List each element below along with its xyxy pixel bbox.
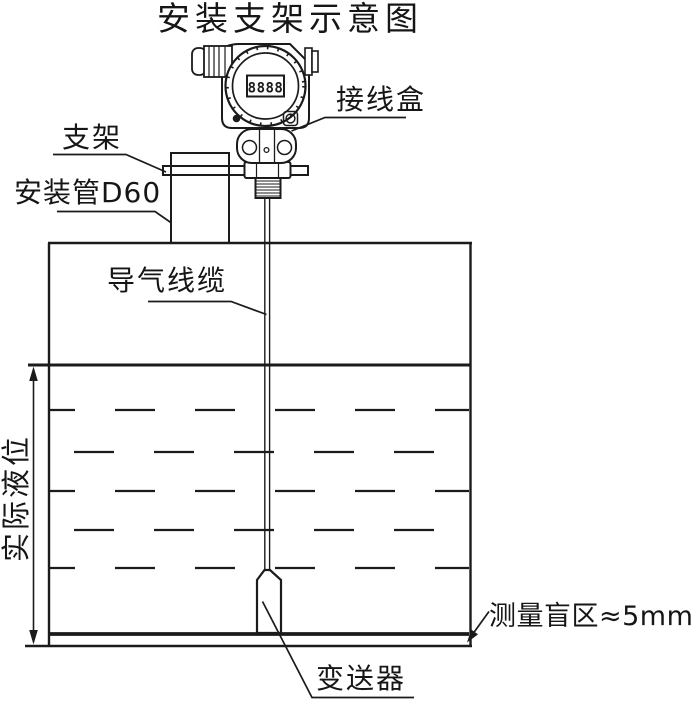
- label-actual-level: 实际液位: [0, 418, 34, 578]
- blind-zone-arrowhead-icon: [467, 630, 478, 643]
- label-transmitter: 变送器: [316, 663, 406, 695]
- yoke: [237, 129, 296, 163]
- installation-diagram-page: 8888: [0, 0, 700, 708]
- label-air-cable: 导气线缆: [107, 265, 227, 297]
- leader-air-cable: [148, 302, 267, 315]
- side-port-icon: [305, 48, 318, 75]
- leader-blind-zone: [474, 612, 490, 634]
- cable-gland-icon: [192, 46, 232, 77]
- liquid-dashes: [50, 410, 469, 568]
- transmitter-head: 8888: [192, 44, 318, 128]
- tank: [25, 243, 472, 647]
- label-blind-zone: 测量盲区≈5mm: [489, 601, 693, 632]
- threaded-stem: [256, 178, 281, 198]
- hex-nut: [245, 162, 291, 178]
- lcd-digits: 8888: [248, 81, 284, 97]
- arrow-down-icon: [29, 630, 38, 645]
- arrow-up-icon: [29, 367, 38, 382]
- label-mounting-pipe: 安装管D60: [14, 177, 161, 209]
- page-title: 安装支架示意图: [140, 0, 440, 38]
- label-bracket: 支架: [62, 122, 122, 154]
- probe-body: [257, 570, 281, 633]
- label-junction-box: 接线盒: [336, 84, 426, 116]
- housing-left-bolt-icon: [233, 115, 241, 123]
- leader-mounting-pipe: [57, 212, 172, 224]
- leader-bracket: [53, 155, 166, 173]
- air-guide-cable: [265, 198, 270, 571]
